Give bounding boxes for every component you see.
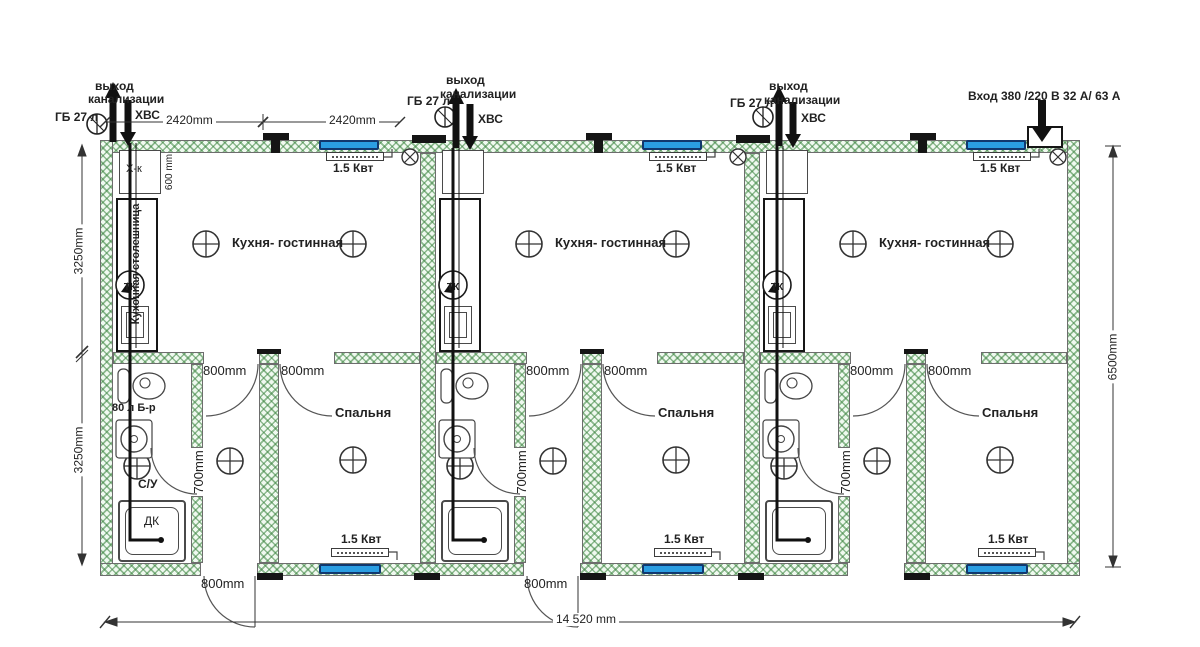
bath-door-dim: 700mm [515, 450, 529, 493]
drain-point [481, 537, 487, 543]
gas-bottle-icon [435, 107, 455, 127]
vent-valve-icon [730, 149, 746, 165]
boiler-80l-icon [439, 420, 475, 458]
ceiling-lamp-icon [340, 231, 366, 257]
heater-label: 1.5 Квт [664, 533, 704, 546]
shower-cabin-label: ДК [144, 515, 159, 528]
drain-point [805, 537, 811, 543]
ceiling-lamp-icon [663, 447, 689, 473]
room-label-bathroom: С/У [138, 478, 157, 491]
sewer-exit-label: выход [769, 80, 808, 93]
entry-door-dim: 800mm [201, 577, 244, 591]
sewer-riser-pipes [130, 143, 808, 540]
door-dim: 800mm [604, 364, 647, 378]
sewer-exit-label: канализации [440, 88, 516, 101]
floor-plan: ТК ТК ТК [0, 0, 1200, 647]
sewer-exit-label: выход [446, 74, 485, 87]
toilet-icon [441, 369, 488, 403]
ceiling-lamp-icon [340, 447, 366, 473]
radiator-pipes [384, 149, 1044, 560]
gas-bottle-label: ГБ 27 л [55, 111, 98, 124]
ceiling-lamp-icon [193, 231, 219, 257]
room-label-kitchen-living: Кухня- гостинная [555, 236, 666, 250]
bay-width-dim: 2420mm [163, 114, 216, 127]
room-label-bedroom: Спальня [658, 406, 714, 420]
sewer-exit-label: канализации [764, 94, 840, 107]
heater-label: 1.5 Квт [988, 533, 1028, 546]
cold-water-label: ХВС [478, 113, 503, 126]
heater-label: 1.5 Квт [333, 162, 373, 175]
door-dim: 800mm [203, 364, 246, 378]
toilet-icon [118, 369, 165, 403]
ceiling-lamp-icon [987, 231, 1013, 257]
door-dim: 800mm [526, 364, 569, 378]
cold-water-arrow-icon [120, 100, 136, 146]
entry-door-dim: 800mm [524, 577, 567, 591]
power-input-arrow-icon [1031, 100, 1053, 142]
toilet-icon [765, 369, 812, 403]
ceiling-lamp-icon [540, 448, 566, 474]
heater-label: 1.5 Квт [341, 533, 381, 546]
kitchen-depth-dim: 3250mm [73, 225, 86, 278]
cold-water-arrow-icon [785, 102, 801, 148]
drain-point [158, 537, 164, 543]
overall-depth-dim: 6500mm [1107, 331, 1120, 384]
gas-bottle-label: ГБ 27 л [730, 97, 773, 110]
gas-bottle-icon [753, 107, 773, 127]
door-dim: 800mm [850, 364, 893, 378]
room-label-kitchen-living: Кухня- гостинная [879, 236, 990, 250]
heater-label: 1.5 Квт [656, 162, 696, 175]
ceiling-lamp-icon [864, 448, 890, 474]
sewer-exit-label: канализации [88, 93, 164, 106]
room-label-bedroom: Спальня [982, 406, 1038, 420]
room-label-kitchen-living: Кухня- гостинная [232, 236, 343, 250]
heater-label: 1.5 Квт [980, 162, 1020, 175]
vent-valve-icon [402, 149, 418, 165]
bath-door-dim: 700mm [839, 450, 853, 493]
bedroom-depth-dim: 3250mm [73, 424, 86, 477]
overall-width-dim: 14 520 mm [553, 613, 619, 626]
cold-water-label: ХВС [135, 109, 160, 122]
door-dim: 800mm [281, 364, 324, 378]
cold-water-label: ХВС [801, 112, 826, 125]
power-input-label: Вход 380 /220 В 32 А/ 63 А [968, 90, 1120, 103]
ceiling-lamp-icon [987, 447, 1013, 473]
fridge-label: Х-к [126, 164, 142, 176]
vent-valve-icon [1050, 149, 1066, 165]
room-label-bedroom: Спальня [335, 406, 391, 420]
ceiling-lamp-icon [516, 231, 542, 257]
boiler-80l-icon [116, 420, 152, 458]
ceiling-lamp-icon [840, 231, 866, 257]
gas-bottle-label: ГБ 27 л [407, 95, 450, 108]
bay-width-dim: 2420mm [326, 114, 379, 127]
boiler-80l-label: 80 л Б-р [112, 403, 156, 415]
boiler-80l-icon [763, 420, 799, 458]
cold-water-arrow-icon [462, 104, 478, 150]
fridge-niche-dim: 600 mm [165, 154, 176, 190]
ceiling-lamp-icon [217, 448, 243, 474]
ceiling-lamp-icon [663, 231, 689, 257]
countertop-label: Кухонная столешница [131, 204, 143, 325]
bath-door-dim: 700mm [192, 450, 206, 493]
door-dim: 800mm [928, 364, 971, 378]
sewer-exit-label: выход [95, 80, 134, 93]
